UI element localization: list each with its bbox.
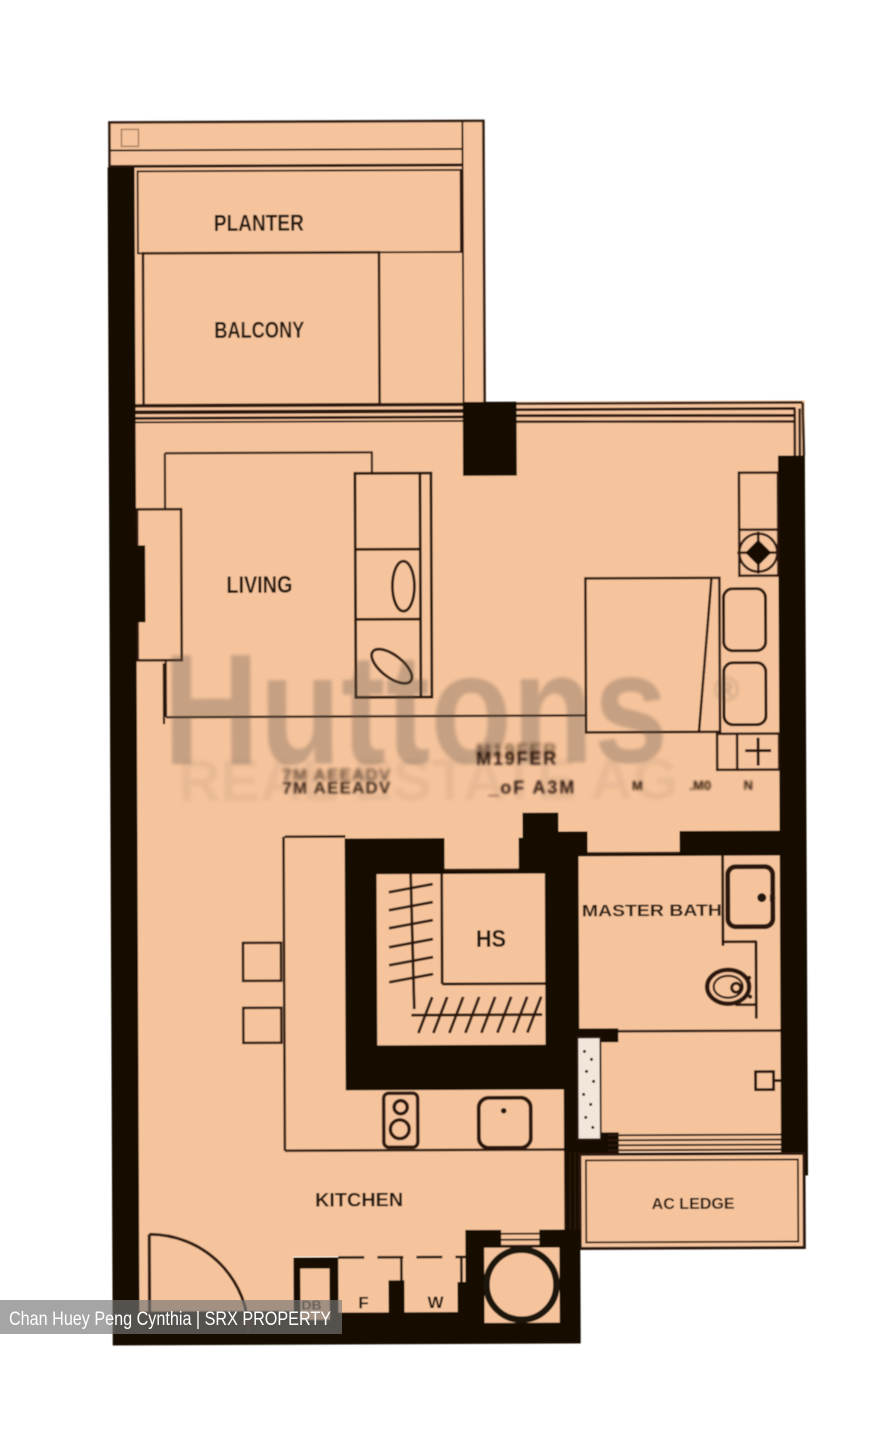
svg-text:PLANTER: PLANTER (214, 210, 304, 236)
svg-text:F: F (358, 1293, 368, 1312)
svg-text:W: W (427, 1293, 444, 1312)
svg-text:AC LEDGE: AC LEDGE (652, 1196, 735, 1213)
svg-text:N: N (744, 778, 753, 793)
svg-text:LIVING: LIVING (226, 572, 292, 599)
svg-text:®: ® (714, 671, 739, 709)
svg-text:Chan Huey Peng Cynthia | SRX P: Chan Huey Peng Cynthia | SRX PROPERTY (9, 1309, 331, 1330)
svg-text:HS: HS (476, 926, 506, 953)
svg-text:M19FER: M19FER (476, 741, 556, 761)
svg-text:MASTER BATH: MASTER BATH (582, 901, 722, 921)
svg-text:BALCONY: BALCONY (214, 317, 304, 343)
svg-text:7M AEEADV: 7M AEEADV (282, 778, 391, 797)
svg-text:KITCHEN: KITCHEN (315, 1190, 403, 1211)
svg-text:REAL ESTATE AG: REAL ESTATE AG (178, 747, 678, 814)
svg-text:M: M (632, 778, 643, 793)
svg-text:.M0: .M0 (689, 778, 711, 793)
